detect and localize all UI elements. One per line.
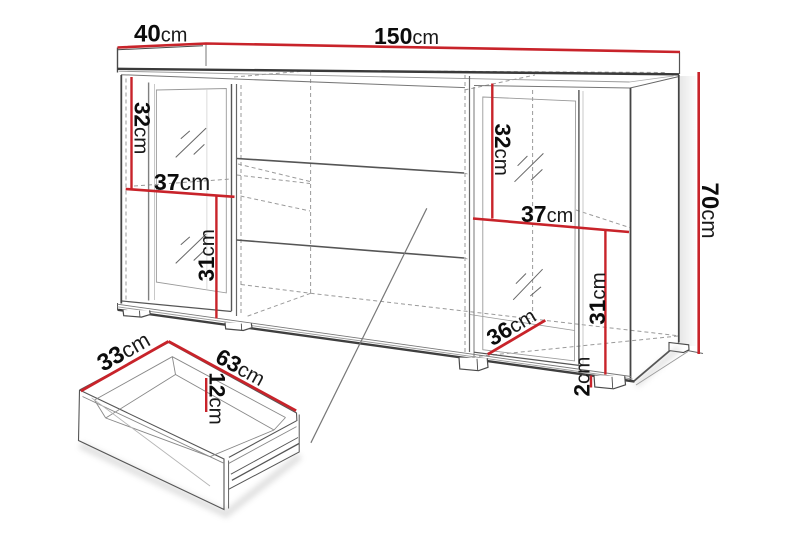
- svg-text:70cm: 70cm: [696, 183, 723, 239]
- svg-text:31cm: 31cm: [194, 229, 219, 281]
- svg-text:40cm: 40cm: [134, 21, 187, 48]
- svg-text:150cm: 150cm: [374, 23, 439, 49]
- svg-text:2cm: 2cm: [570, 357, 595, 397]
- svg-text:32cm: 32cm: [130, 102, 155, 154]
- svg-text:37cm: 37cm: [521, 201, 573, 227]
- svg-text:32cm: 32cm: [490, 124, 515, 176]
- svg-text:31cm: 31cm: [585, 272, 610, 324]
- svg-text:37cm: 37cm: [154, 169, 210, 195]
- svg-text:12cm: 12cm: [205, 372, 230, 424]
